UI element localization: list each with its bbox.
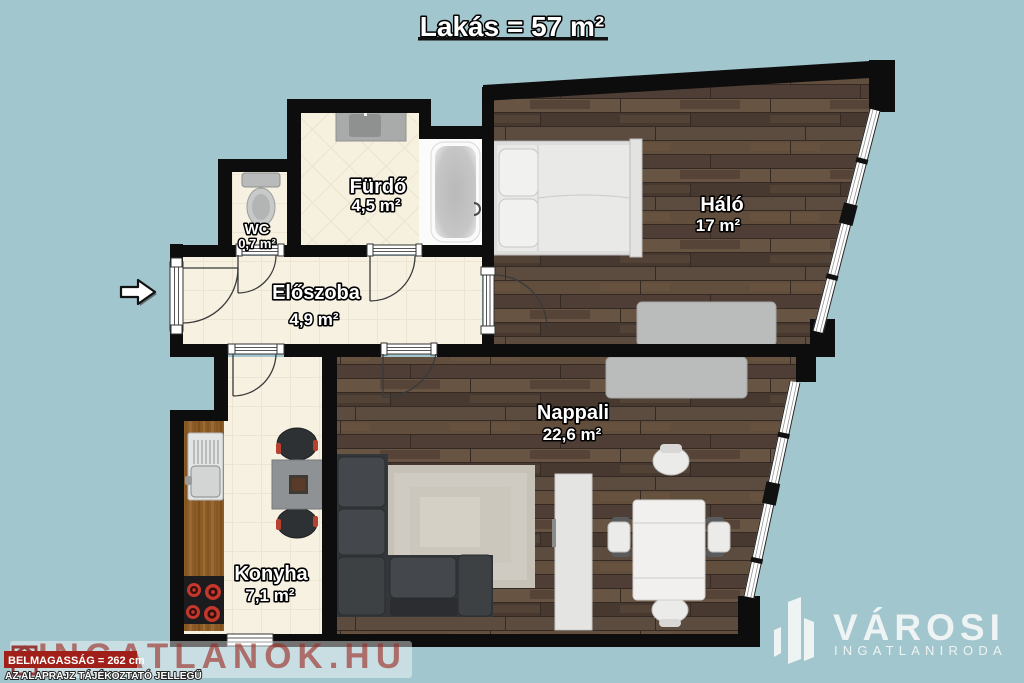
svg-text:Előszoba: Előszoba [272,282,361,304]
svg-text:INGATLANIRODA: INGATLANIRODA [834,643,1007,658]
svg-text:BELMAGASSÁG = 262 cm: BELMAGASSÁG = 262 cm [8,654,145,667]
svg-text:22,6 m²: 22,6 m² [543,425,602,444]
svg-text:AZ ALAPRAJZ TÁJÉKOZTATÓ JELLEG: AZ ALAPRAJZ TÁJÉKOZTATÓ JELLEGŰ [5,669,202,682]
svg-text:7,1 m²: 7,1 m² [245,586,294,605]
svg-text:17 m²: 17 m² [696,216,741,235]
svg-text:VÁROSI: VÁROSI [833,607,1005,648]
svg-text:4,9 m²: 4,9 m² [289,310,338,329]
svg-text:Fürdő: Fürdő [350,176,407,198]
svg-text:Háló: Háló [700,194,743,216]
svg-text:4,5 m²: 4,5 m² [351,196,400,215]
svg-text:0,7 m²: 0,7 m² [238,236,276,251]
svg-text:Nappali: Nappali [537,402,609,424]
svg-text:Konyha: Konyha [234,563,308,585]
